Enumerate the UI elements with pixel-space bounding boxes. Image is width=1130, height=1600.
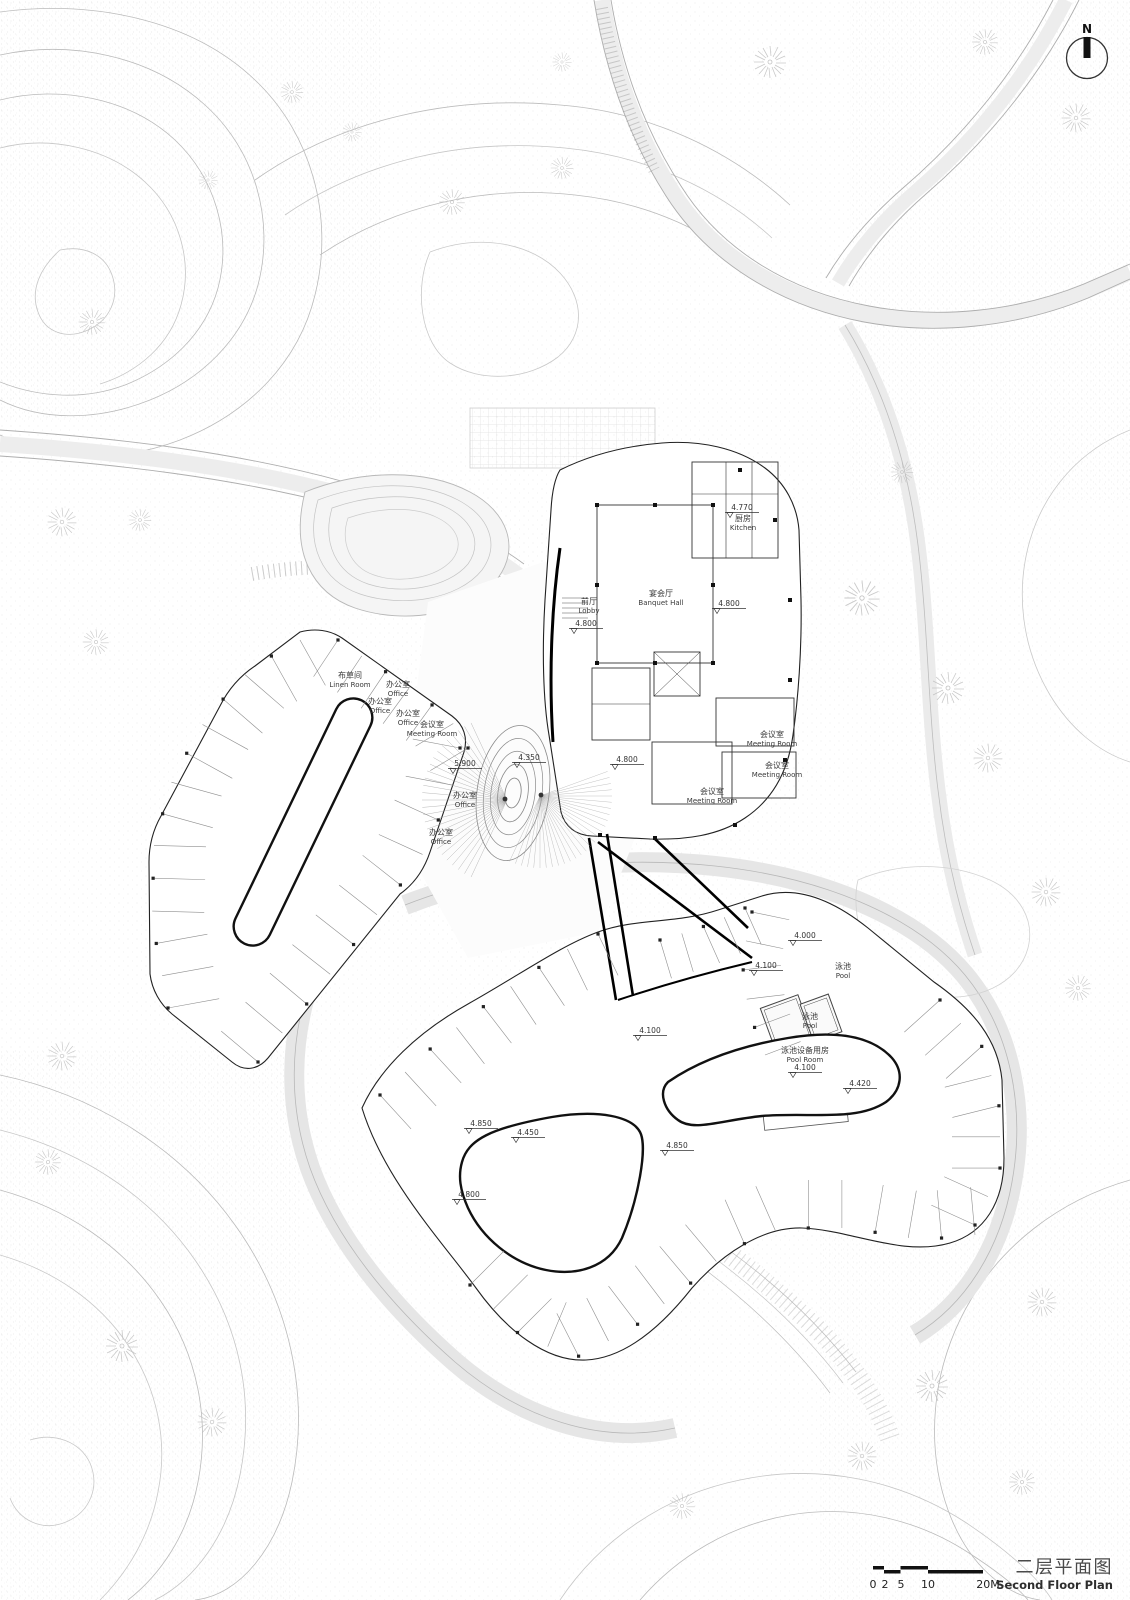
scale-label-2: 2 [882,1578,889,1591]
room-label: 办公室Office [386,679,410,698]
svg-text:5.900: 5.900 [454,759,476,768]
svg-text:办公室: 办公室 [453,790,477,800]
site-plan-sheet: 前厅Lobby宴会厅Banquet Hall厨房Kitchen会议室Meetin… [0,0,1130,1600]
scale-label-5: 5 [898,1578,905,1591]
svg-text:4.420: 4.420 [849,1079,871,1088]
svg-text:泳池: 泳池 [802,1011,818,1021]
svg-text:会议室: 会议室 [765,760,789,770]
svg-text:泳池: 泳池 [835,961,851,971]
svg-text:Office: Office [398,719,418,727]
svg-text:4.800: 4.800 [575,619,597,628]
svg-text:Meeting Room: Meeting Room [747,740,798,748]
north-arrow-needle [1084,37,1091,58]
svg-text:4.100: 4.100 [639,1026,661,1035]
scale-label-0: 0 [870,1578,877,1591]
room-label: 办公室Office [368,696,392,715]
svg-text:Lobby: Lobby [578,607,599,615]
svg-text:4.800: 4.800 [718,599,740,608]
svg-text:布草间: 布草间 [338,670,362,680]
svg-text:办公室: 办公室 [396,708,420,718]
building-banquet [543,442,801,839]
svg-text:4.100: 4.100 [794,1063,816,1072]
svg-text:4.100: 4.100 [755,961,777,970]
svg-text:Office: Office [455,801,475,809]
svg-text:宴会厅: 宴会厅 [649,588,673,598]
svg-text:会议室: 会议室 [700,786,724,796]
room-label: 办公室Office [453,790,477,809]
drawing-title-en: Second Floor Plan [996,1578,1113,1592]
svg-text:4.850: 4.850 [666,1141,688,1150]
svg-text:4.770: 4.770 [731,503,753,512]
svg-text:Office: Office [431,838,451,846]
svg-text:Meeting Room: Meeting Room [407,730,458,738]
svg-text:办公室: 办公室 [429,827,453,837]
svg-text:4.350: 4.350 [518,753,540,762]
svg-text:4.850: 4.850 [470,1119,492,1128]
svg-text:Pool: Pool [803,1022,818,1030]
svg-text:4.000: 4.000 [794,931,816,940]
room-label: 泳池Pool [802,1011,818,1030]
svg-text:Office: Office [370,707,390,715]
svg-text:前厅: 前厅 [581,596,597,606]
svg-text:泳池设备用房: 泳池设备用房 [781,1045,829,1055]
svg-text:4.800: 4.800 [616,755,638,764]
svg-text:Linen Room: Linen Room [329,681,370,689]
svg-text:办公室: 办公室 [386,679,410,689]
svg-text:4.450: 4.450 [517,1128,539,1137]
room-label: 办公室Office [429,827,453,846]
room-label: 前厅Lobby [578,596,599,615]
room-label: 办公室Office [396,708,420,727]
room-label: 泳池Pool [835,961,851,980]
svg-text:Meeting Room: Meeting Room [752,771,803,779]
svg-text:办公室: 办公室 [368,696,392,706]
drawing-title-zh: 二层平面图 [1016,1557,1114,1578]
svg-text:Kitchen: Kitchen [730,524,756,532]
svg-text:Banquet Hall: Banquet Hall [638,599,683,607]
svg-text:厨房: 厨房 [735,513,751,523]
north-label: N [1082,22,1092,36]
svg-text:会议室: 会议室 [760,729,784,739]
svg-text:Pool: Pool [836,972,851,980]
site-plan-svg: 前厅Lobby宴会厅Banquet Hall厨房Kitchen会议室Meetin… [0,0,1130,1600]
svg-text:Meeting Room: Meeting Room [687,797,738,805]
room-label: 泳池设备用房Pool Room [781,1045,829,1064]
svg-text:4.800: 4.800 [458,1190,480,1199]
svg-text:会议室: 会议室 [420,719,444,729]
scale-label-10: 10 [921,1578,935,1591]
